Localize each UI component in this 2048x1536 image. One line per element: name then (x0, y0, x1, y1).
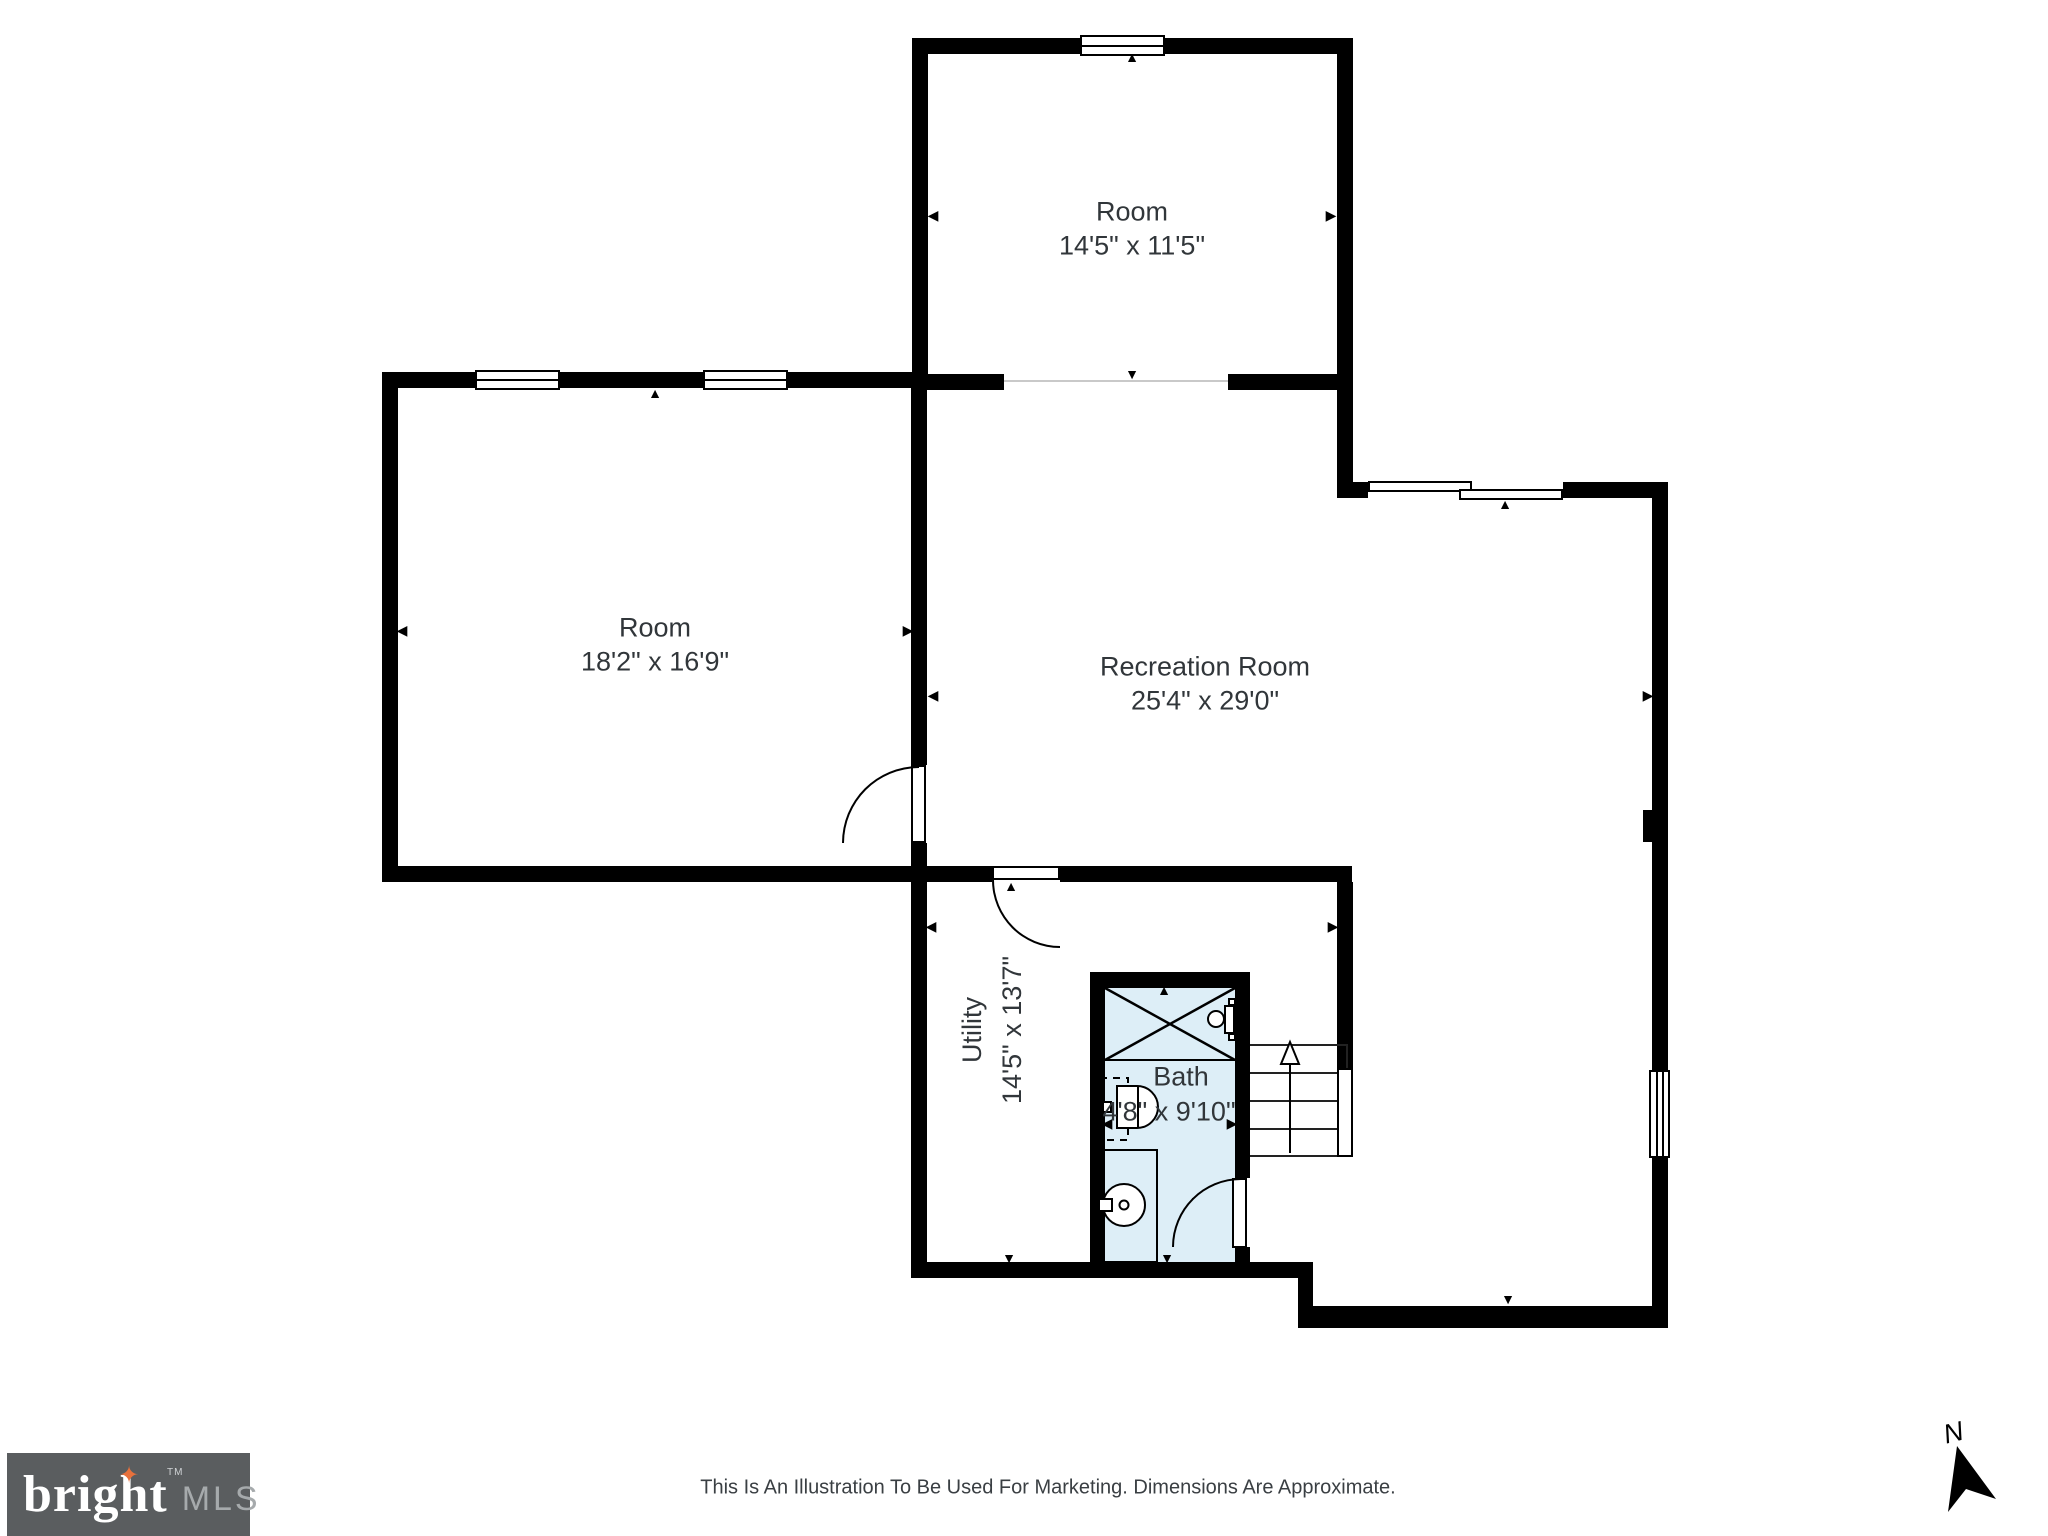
door-left-room-swing (842, 766, 919, 843)
window-left-room-2 (703, 370, 788, 390)
wall-top-room-right (1337, 38, 1353, 498)
stairs-up-arrow (1281, 1042, 1299, 1153)
wall-bath-right-lower (1235, 1247, 1250, 1278)
window-glazing-line (705, 379, 786, 381)
wall-bottom-step (1298, 1262, 1313, 1322)
door-utility-swing (992, 880, 1060, 948)
stair-tread (1250, 1155, 1348, 1157)
room-label-bath-name: Bath (1153, 1062, 1209, 1093)
stair-tread (1250, 1072, 1348, 1074)
wall-right-outer-upper (1652, 482, 1668, 1073)
wall-right-bump (1643, 810, 1668, 842)
dim-arrow-up: ▲ (1125, 50, 1139, 64)
dim-arrow-left: ◀ (926, 919, 937, 933)
wall-utility-top-left-seg (382, 866, 992, 882)
window-glazing-line (1082, 45, 1163, 47)
north-arrow-icon: N (1940, 1416, 1996, 1512)
bright-mls-logo: bright ✦ TM MLS (7, 1453, 250, 1536)
window-top-room (1080, 35, 1165, 56)
north-label: N (1940, 1416, 1967, 1450)
window-glazing-line (1656, 1072, 1658, 1156)
dim-arrow-up: ▲ (1157, 983, 1171, 997)
wall-top-room-left (912, 38, 928, 390)
wall-top-room-bottom-right-seg (1228, 374, 1352, 390)
door-utility-leaf (992, 866, 1060, 880)
dim-arrow-right: ▶ (903, 623, 914, 637)
logo-tm: TM (167, 1467, 183, 1478)
wall-utility-bottom (911, 1262, 1313, 1278)
opening-top-room (1004, 380, 1228, 382)
room-label-recreation-name: Recreation Room (1100, 652, 1310, 683)
dim-arrow-right: ▶ (1328, 919, 1339, 933)
room-label-top-dims: 14'5" x 11'5" (1059, 231, 1205, 262)
window-glazing-line (477, 379, 558, 381)
dim-arrow-up: ▲ (1498, 497, 1512, 511)
room-label-utility-dims: 14'5" x 13'7" (992, 956, 1032, 1104)
room-label-top-name: Room (1096, 197, 1168, 228)
wall-right-outer-lower (1652, 1155, 1668, 1328)
room-label-bath-dims: 4'8" x 9'10" (1102, 1097, 1235, 1128)
stair-tread (1250, 1100, 1348, 1102)
window-left-room-1 (475, 370, 560, 390)
wall-slider-left-seg (1338, 482, 1368, 498)
logo-mls: MLS (182, 1480, 261, 1519)
wall-utility-right (1337, 882, 1353, 1068)
logo-star-icon: ✦ (119, 1461, 139, 1490)
dim-arrow-right: ▶ (1643, 688, 1654, 702)
stair-tread (1250, 1044, 1348, 1046)
dim-arrow-down: ▼ (1160, 1251, 1174, 1265)
dim-arrow-right: ▶ (1326, 208, 1337, 222)
dim-arrow-down: ▼ (1125, 367, 1139, 381)
dim-arrow-left: ◀ (928, 688, 939, 702)
room-label-left-name: Room (619, 613, 691, 644)
wall-utility-top-right-seg (1060, 866, 1352, 882)
dim-arrow-up: ▲ (1004, 879, 1018, 893)
dim-arrow-down: ▼ (661, 866, 675, 880)
logo-word: bright (23, 1465, 168, 1524)
dim-arrow-left: ◀ (928, 208, 939, 222)
room-label-utility-name: Utility (952, 956, 992, 1104)
disclaimer-text: This Is An Illustration To Be Used For M… (700, 1477, 1396, 1500)
wall-bath-right-upper (1235, 972, 1250, 1178)
dim-arrow-up: ▲ (648, 386, 662, 400)
stair-tread (1250, 1128, 1348, 1130)
dim-arrow-down: ▼ (1501, 1292, 1515, 1306)
floor-plan: ▲ ▼ ◀ ▶ ▲ ▼ ◀ ▶ ▲ ▼ ◀ ▶ ▲ ▼ ◀ ▶ ▲ ▼ ◀ ▶ (0, 0, 2048, 1536)
wall-left-room-right-upper (911, 388, 927, 765)
wall-left-room-left (382, 372, 398, 882)
stair-opening (1337, 1068, 1353, 1157)
dim-arrow-left: ◀ (397, 623, 408, 637)
window-right-wall (1649, 1070, 1670, 1158)
room-label-utility: Utility 14'5" x 13'7" (952, 956, 1032, 1104)
wall-utility-left (911, 882, 927, 1278)
room-label-left-dims: 18'2" x 16'9" (581, 647, 729, 678)
sliding-door-panel-1 (1368, 481, 1472, 492)
dim-arrow-down: ▼ (1002, 1251, 1016, 1265)
window-glazing-line (1662, 1072, 1664, 1156)
wall-bottom-right (1298, 1306, 1668, 1328)
room-label-recreation-dims: 25'4" x 29'0" (1131, 686, 1279, 717)
